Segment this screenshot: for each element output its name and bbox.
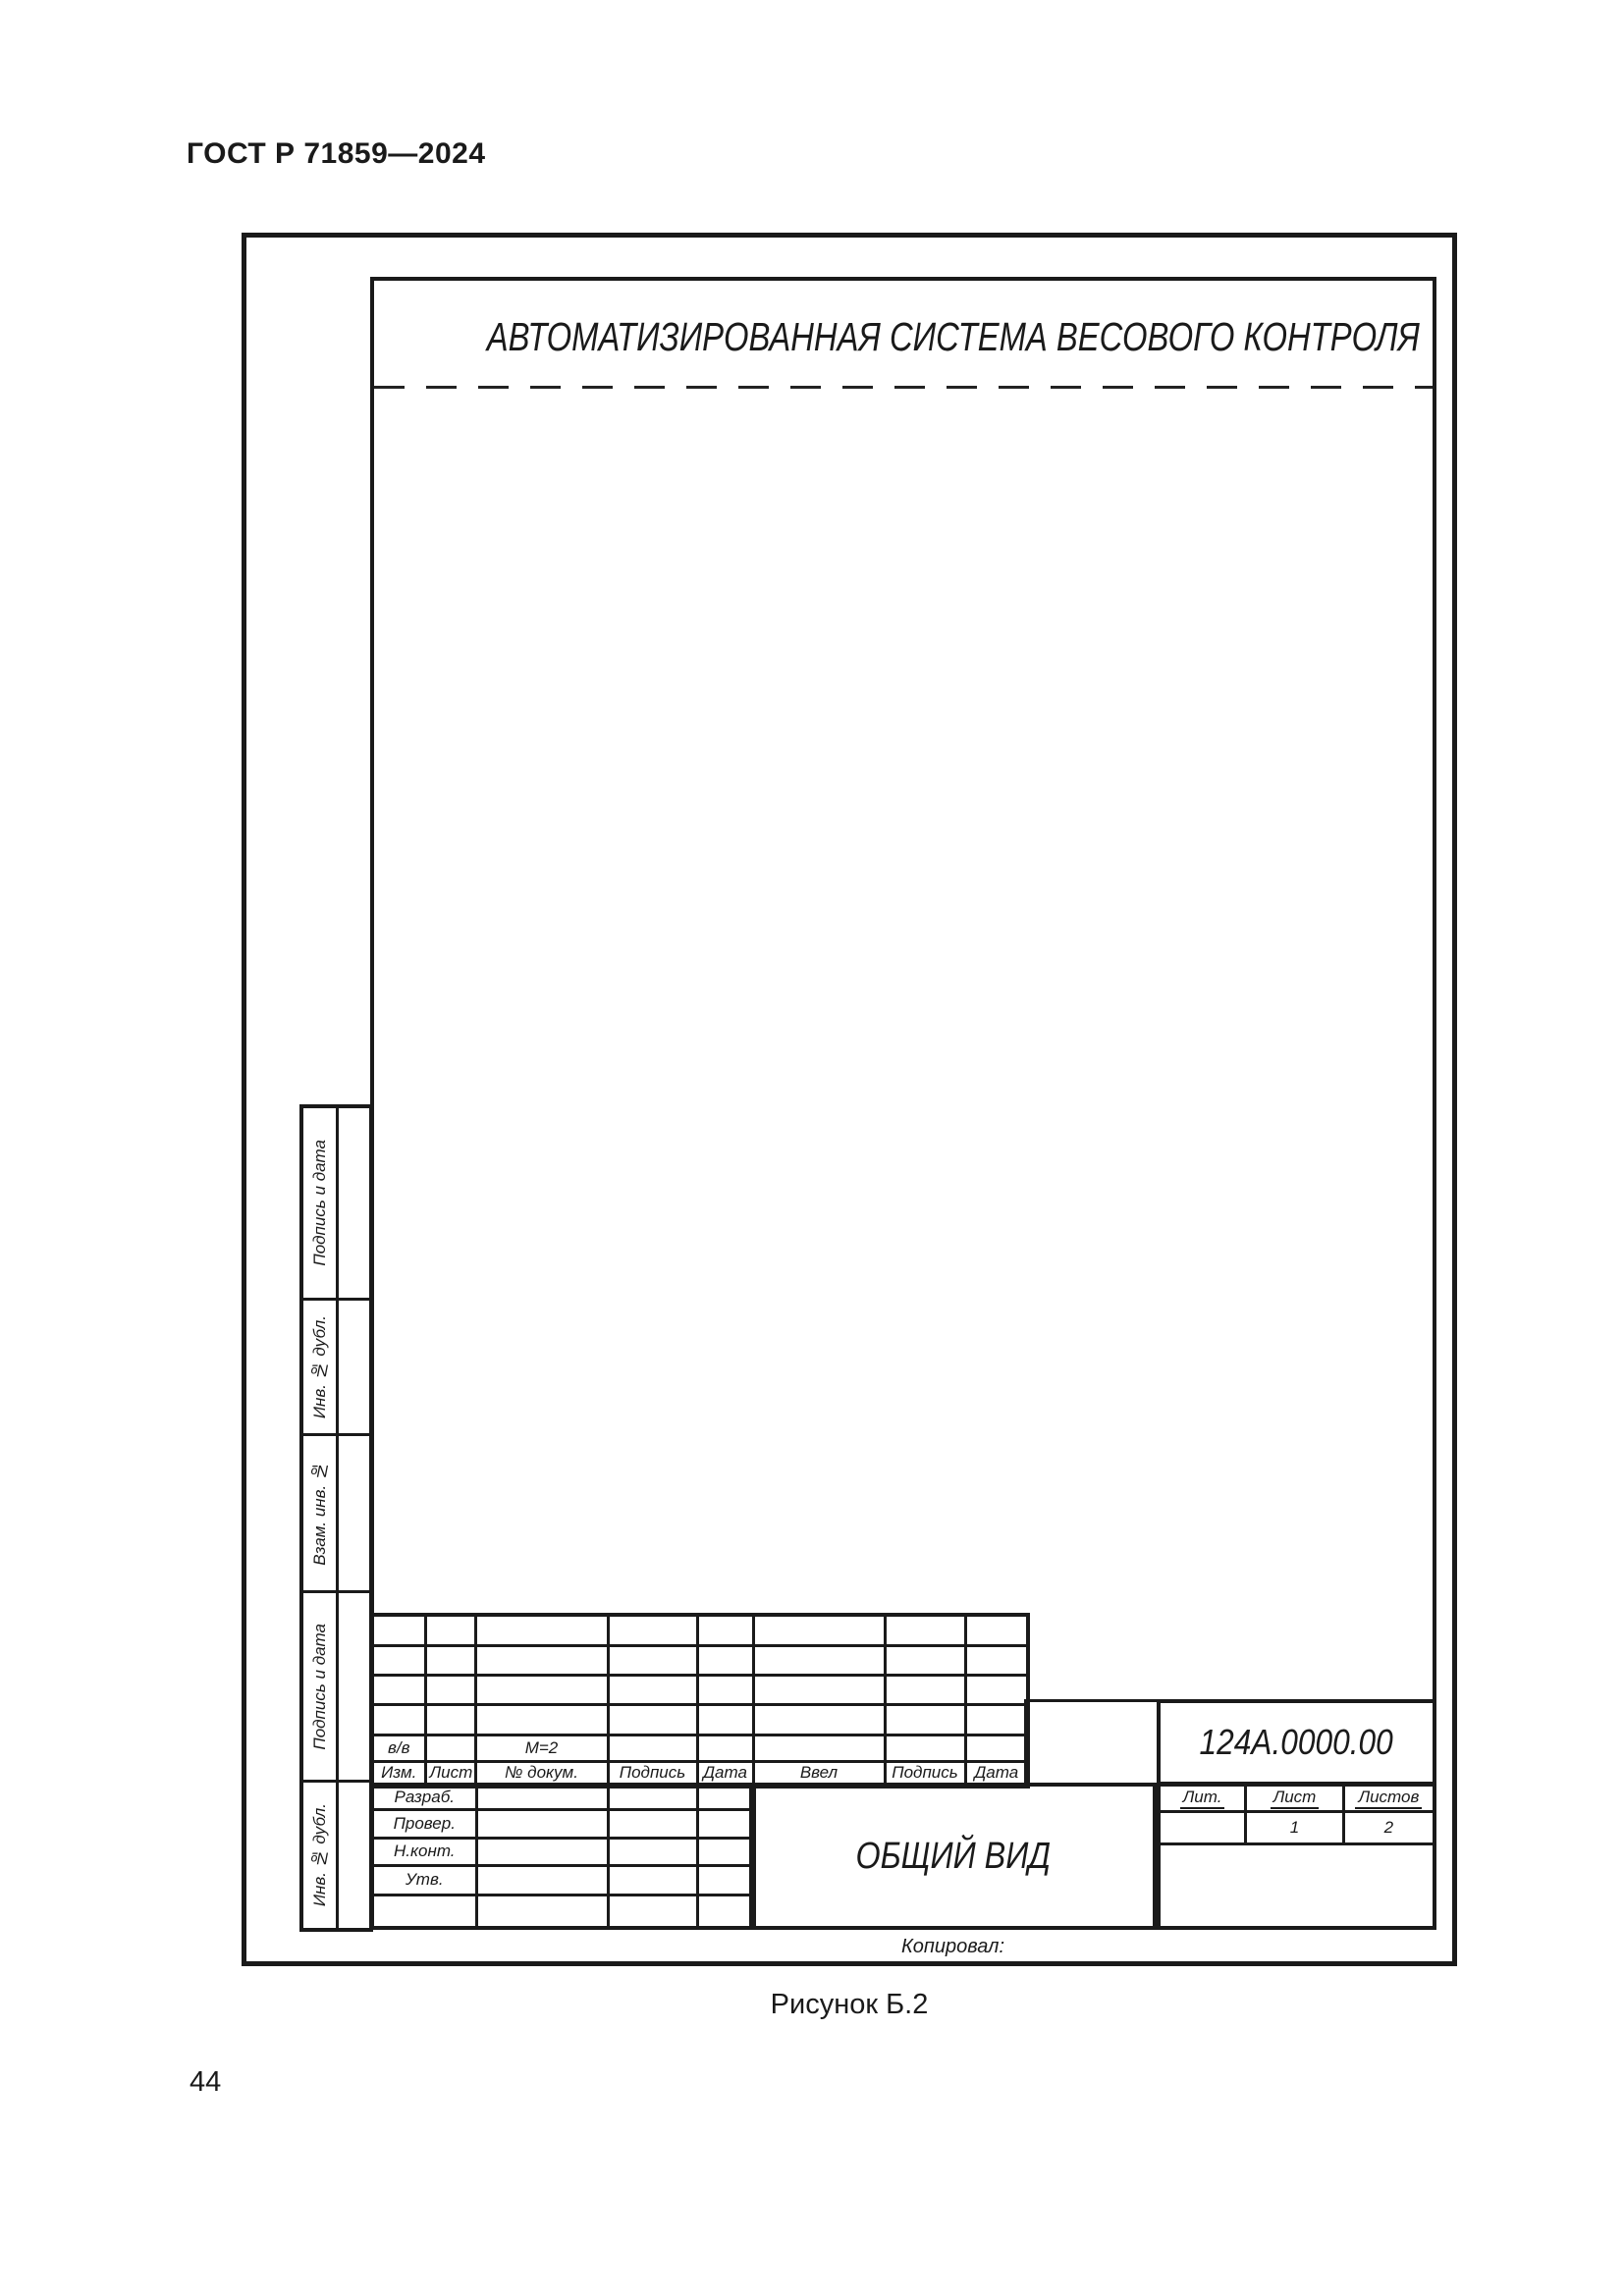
empty-cell <box>475 1615 608 1645</box>
change-record-doc: М=2 <box>475 1735 608 1761</box>
side-label: Инв. № дубл. <box>310 1803 330 1906</box>
empty-cell <box>1024 1699 1160 1786</box>
side-column-label-cell: Инв. № дубл. <box>303 1301 339 1433</box>
drawing-title: АВТОМАТИЗИРОВАННАЯ СИСТЕМА ВЕСОВОГО КОНТ… <box>370 314 1436 360</box>
empty-cell <box>885 1704 965 1735</box>
header-label: Ввел <box>797 1764 840 1785</box>
page-number: 44 <box>189 2066 221 2099</box>
empty-cell <box>608 1895 697 1928</box>
empty-cell <box>965 1645 1028 1675</box>
side-column-label-cell: Подпись и дата <box>303 1108 339 1298</box>
designation: 124А.0000.00 <box>1200 1722 1393 1763</box>
empty-cell <box>885 1645 965 1675</box>
side-label: Взам. инв. № <box>310 1462 330 1566</box>
signature-row <box>372 1895 754 1928</box>
empty-cell <box>425 1645 475 1675</box>
signature-role: Разраб. <box>394 1788 455 1806</box>
empty-cell <box>965 1615 1028 1645</box>
empty-cell <box>885 1675 965 1704</box>
empty-cell <box>608 1704 697 1735</box>
change-table-row <box>372 1645 1028 1675</box>
empty-cell <box>697 1895 754 1928</box>
change-table-row <box>372 1704 1028 1735</box>
empty-cell <box>753 1675 885 1704</box>
side-column-row: Инв. № дубл. <box>303 1783 369 1928</box>
empty-cell <box>608 1838 697 1865</box>
empty-cell <box>697 1735 753 1761</box>
header-label: Дата <box>971 1764 1021 1785</box>
empty-cell <box>425 1735 475 1761</box>
empty-cell <box>697 1704 753 1735</box>
empty-cell <box>965 1704 1028 1735</box>
signature-role-cell: Н.конт. <box>372 1838 476 1865</box>
empty-cell <box>372 1645 425 1675</box>
sheet-header-cell: Лист <box>1246 1785 1344 1811</box>
header-label: № докум. <box>502 1764 581 1785</box>
side-label: Инв. № дубл. <box>310 1315 330 1418</box>
empty-cell <box>608 1645 697 1675</box>
signature-role: Н.конт. <box>394 1842 456 1860</box>
empty-cell <box>608 1735 697 1761</box>
lit-header: Лит. <box>1180 1789 1225 1809</box>
signature-role-cell <box>372 1895 476 1928</box>
change-record-izm: в/в <box>372 1735 425 1761</box>
organization-row <box>1159 1843 1435 1928</box>
designation-cell: 124А.0000.00 <box>1157 1699 1436 1786</box>
empty-cell <box>697 1675 753 1704</box>
empty-cell <box>339 1436 369 1590</box>
document-page: ГОСТ Р 71859—2024 АВТОМАТИЗИРОВАННАЯ СИС… <box>0 0 1624 2296</box>
signature-row: Разраб. <box>372 1785 754 1809</box>
empty-cell <box>608 1865 697 1895</box>
change-table-row <box>372 1675 1028 1704</box>
empty-cell <box>753 1645 885 1675</box>
drawing-title-text: АВТОМАТИЗИРОВАННАЯ СИСТЕМА ВЕСОВОГО КОНТ… <box>487 314 1420 360</box>
empty-cell <box>753 1615 885 1645</box>
figure-caption: Рисунок Б.2 <box>243 1989 1456 2021</box>
empty-cell <box>339 1301 369 1433</box>
signature-role-cell: Утв. <box>372 1865 476 1895</box>
side-column: Подпись и дата Инв. № дубл. Взам. инв. №… <box>299 1104 373 1932</box>
empty-cell <box>372 1675 425 1704</box>
signature-role-cell: Разраб. <box>372 1785 476 1809</box>
signature-role: Провер. <box>394 1814 456 1833</box>
signature-row: Н.конт. <box>372 1838 754 1865</box>
empty-cell <box>372 1615 425 1645</box>
empty-cell <box>475 1675 608 1704</box>
lit-values-row: 1 2 <box>1159 1811 1435 1843</box>
header-label: Изм. <box>378 1764 419 1785</box>
empty-cell <box>697 1615 753 1645</box>
sheets-header: Листов <box>1355 1789 1422 1809</box>
empty-cell <box>965 1735 1028 1761</box>
side-label: Подпись и дата <box>310 1624 330 1750</box>
empty-cell <box>753 1704 885 1735</box>
empty-cell <box>608 1675 697 1704</box>
side-column-row: Взам. инв. № <box>303 1436 369 1593</box>
header-label: Дата <box>700 1764 750 1785</box>
dashed-separator <box>374 386 1433 389</box>
empty-cell <box>697 1838 754 1865</box>
organization-cell <box>1159 1843 1435 1928</box>
empty-cell <box>965 1675 1028 1704</box>
empty-cell <box>885 1735 965 1761</box>
empty-cell <box>608 1785 697 1809</box>
header-label: Подпись <box>889 1764 960 1785</box>
empty-cell <box>339 1108 369 1298</box>
empty-cell <box>697 1785 754 1809</box>
sheet-number-cell: 1 <box>1246 1811 1344 1843</box>
lit-table: Лит. Лист Листов 1 2 <box>1157 1783 1436 1930</box>
change-record-doc-text: М=2 <box>525 1738 559 1757</box>
change-table-row <box>372 1615 1028 1645</box>
sheet-number: 1 <box>1290 1818 1299 1837</box>
empty-cell <box>339 1593 369 1780</box>
lit-value-cell <box>1159 1811 1246 1843</box>
side-column-label-cell: Подпись и дата <box>303 1593 339 1780</box>
empty-cell <box>885 1615 965 1645</box>
document-name: ОБЩИЙ ВИД <box>855 1836 1051 1878</box>
side-column-row: Инв. № дубл. <box>303 1301 369 1436</box>
header-label: Лист <box>427 1764 476 1785</box>
side-column-row: Подпись и дата <box>303 1593 369 1783</box>
side-column-label-cell: Инв. № дубл. <box>303 1783 339 1928</box>
empty-cell <box>476 1895 608 1928</box>
empty-cell <box>697 1809 754 1838</box>
standard-reference: ГОСТ Р 71859—2024 <box>187 137 486 171</box>
empty-cell <box>425 1675 475 1704</box>
change-record-row: в/в М=2 <box>372 1735 1028 1761</box>
empty-cell <box>372 1704 425 1735</box>
empty-cell <box>425 1704 475 1735</box>
signature-role-cell: Провер. <box>372 1809 476 1838</box>
empty-cell <box>753 1735 885 1761</box>
empty-cell <box>697 1645 753 1675</box>
signature-row: Провер. <box>372 1809 754 1838</box>
empty-cell <box>425 1615 475 1645</box>
side-label: Подпись и дата <box>310 1140 330 1266</box>
empty-cell <box>476 1785 608 1809</box>
empty-cell <box>608 1809 697 1838</box>
sheets-total: 2 <box>1384 1818 1393 1837</box>
empty-cell <box>608 1615 697 1645</box>
change-record-izm-text: в/в <box>388 1738 409 1757</box>
sheets-total-cell: 2 <box>1343 1811 1435 1843</box>
empty-cell <box>339 1783 369 1928</box>
lit-header-row: Лит. Лист Листов <box>1159 1785 1435 1811</box>
lit-header-cell: Лит. <box>1159 1785 1246 1811</box>
side-column-label-cell: Взам. инв. № <box>303 1436 339 1590</box>
copied-by-label: Копировал: <box>749 1936 1157 1958</box>
sheets-header-cell: Листов <box>1343 1785 1435 1811</box>
empty-cell <box>475 1704 608 1735</box>
side-column-row: Подпись и дата <box>303 1108 369 1301</box>
sheet-header: Лист <box>1271 1789 1320 1809</box>
empty-cell <box>476 1865 608 1895</box>
empty-cell <box>476 1809 608 1838</box>
change-table: в/в М=2 Изм. Лист № докум. Подпись Дата … <box>370 1613 1030 1789</box>
empty-cell <box>697 1865 754 1895</box>
empty-cell <box>475 1645 608 1675</box>
document-name-cell: ОБЩИЙ ВИД <box>749 1783 1157 1930</box>
empty-cell <box>476 1838 608 1865</box>
signature-row: Утв. <box>372 1865 754 1895</box>
signature-role: Утв. <box>406 1870 444 1889</box>
header-label: Подпись <box>617 1764 688 1785</box>
signature-table: Разраб. Провер. Н.конт. Утв. <box>370 1783 756 1930</box>
